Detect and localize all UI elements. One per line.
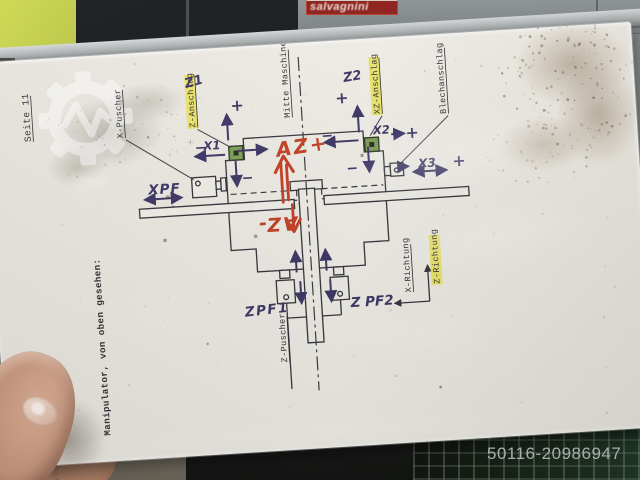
page-number: Seite 11 [20, 93, 34, 142]
photographed-technical-diagram: salvagnini [0, 0, 640, 480]
minus-sign: − [241, 170, 254, 187]
label-blechanschlag: Blechanschlag [435, 42, 449, 114]
brand-sticker-label: salvagnini [310, 0, 397, 15]
red-up-arrow [274, 155, 295, 202]
z2-annotation: Z2 [341, 68, 363, 86]
caption: Manipulator, von oben gesehen: [91, 258, 113, 436]
label-z-puscher: Z-Puscher [277, 313, 290, 363]
thumbnail [18, 391, 63, 432]
label-mitte-maschine: Mitte Maschine [278, 41, 293, 118]
laminated-diagram-sheet: Seite 11 X-Puscher Z-Anschlag Mitte Masc… [0, 22, 640, 468]
z-puscher-assembly-2 [329, 266, 350, 315]
x-puscher-device [192, 176, 227, 198]
plus-sign: + [230, 95, 245, 115]
x1-annotation: X1 [202, 138, 221, 153]
plus-sign: + [335, 88, 350, 108]
manipulator-top-view-diagram: Seite 11 X-Puscher Z-Anschlag Mitte Masc… [0, 22, 640, 468]
label-xz-anschlag: XZ-Anschlag [368, 53, 383, 115]
window-frame [186, 0, 189, 40]
xpf-annotation: XPF [147, 181, 181, 199]
az-plus-annotation: AZ+ [272, 130, 330, 162]
brand-sticker: salvagnini [306, 0, 398, 15]
z-anschlag-sensor-x1 [229, 146, 244, 161]
az-minus-annotation: AZ- [256, 211, 300, 236]
mitte-maschine-label: Mitte Maschine [278, 41, 293, 118]
listing-id-watermark: 50116-20986947 [487, 443, 621, 465]
caption-text: Manipulator, von oben gesehen: [91, 258, 113, 436]
blechanschlag-label: Blechanschlag [435, 42, 449, 114]
faint-print-plus: + [187, 138, 194, 150]
